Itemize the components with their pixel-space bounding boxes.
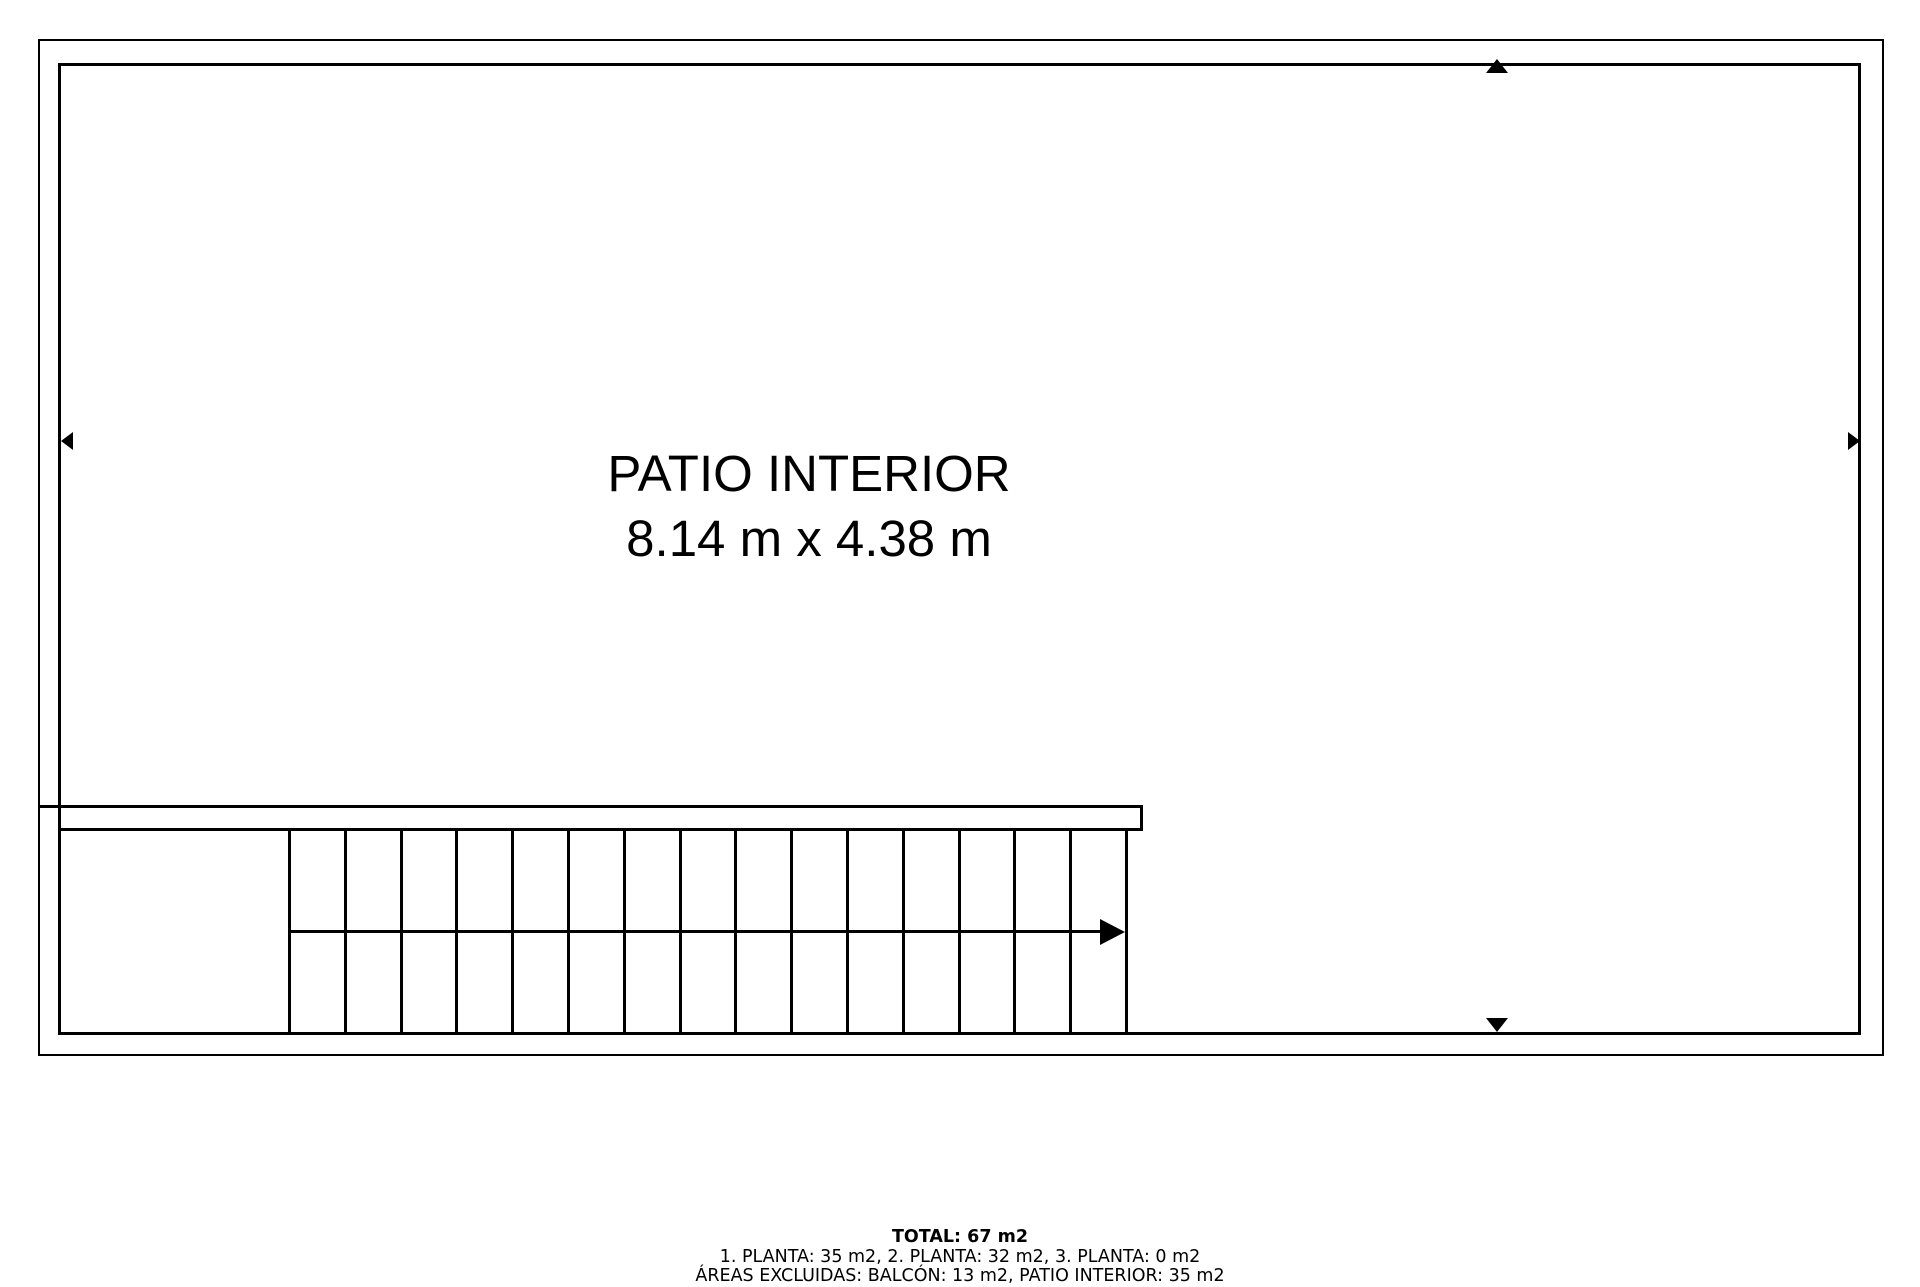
total-area-text: TOTAL: 67 m2 [0, 1228, 1920, 1248]
stair-direction-arrow-icon [1100, 919, 1125, 945]
floor-areas-text: 1. PLANTA: 35 m2, 2. PLANTA: 32 m2, 3. P… [0, 1248, 1920, 1268]
stair-direction-line [288, 930, 1103, 933]
excluded-areas-text: ÁREAS EXCLUIDAS: BALCÓN: 13 m2, PATIO IN… [0, 1267, 1920, 1287]
wall-arrow-down-icon [1486, 1018, 1508, 1032]
room-label-group: PATIO INTERIOR 8.14 m x 4.38 m [309, 441, 1309, 571]
floorplan-page: { "floorplan": { "room": { "label": "PAT… [0, 0, 1920, 1280]
stair-landing-bottom-line [58, 828, 1143, 831]
wall-arrow-right-icon [1848, 432, 1860, 450]
area-summary: TOTAL: 67 m2 1. PLANTA: 35 m2, 2. PLANTA… [0, 1228, 1920, 1287]
stair-landing-end-cap [1140, 805, 1143, 831]
stair-landing-top-line [38, 805, 1143, 808]
wall-arrow-up-icon [1486, 59, 1508, 73]
room-label: PATIO INTERIOR [309, 441, 1309, 506]
room-dimensions: 8.14 m x 4.38 m [309, 506, 1309, 571]
wall-arrow-left-icon [61, 432, 73, 450]
